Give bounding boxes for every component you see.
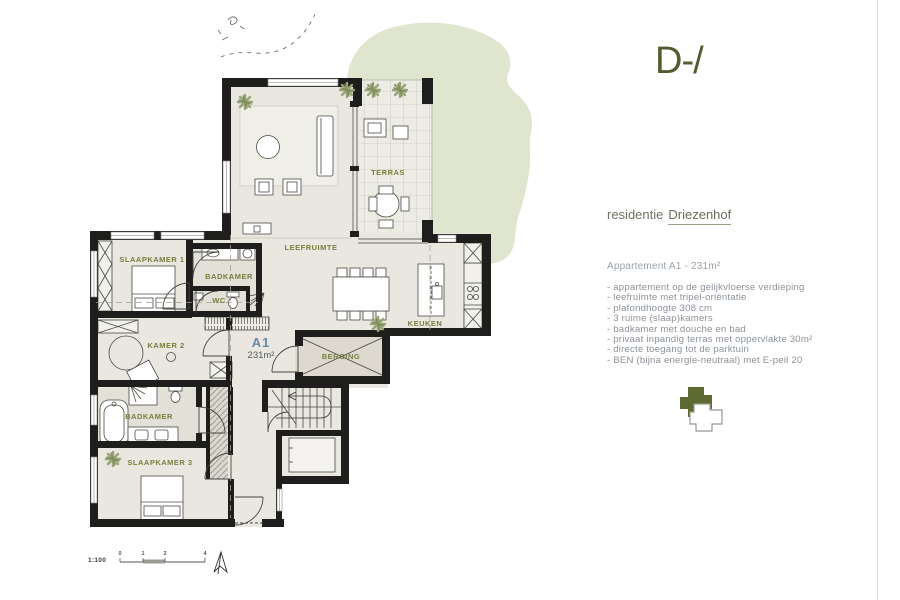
unit-area: 231m² (248, 350, 275, 361)
brand-logo: D-/ (655, 40, 703, 83)
scale-tick-2: 2 (163, 551, 166, 557)
room-label-leefruimte: LEEFRUIMTE (285, 243, 338, 252)
room-label-wc: WC (212, 296, 226, 305)
room-label-berging: BERGING (322, 352, 361, 361)
footprint-logo-icon (680, 387, 722, 431)
scale-tick-3: 4 (203, 551, 206, 557)
scale-tick-0: 0 (118, 551, 121, 557)
site-sketch (218, 14, 315, 57)
room-label-badkamer-bottom: BADKAMER (125, 412, 173, 421)
scale-tick-1: 1 (141, 551, 144, 557)
room-label-keuken: KEUKEN (408, 319, 443, 328)
residence-name: residentieDriezenhof (607, 207, 731, 222)
residence-prefix: residentie (607, 207, 663, 222)
room-label-badkamer-top: BADKAMER (205, 272, 253, 281)
brochure-page: SLAAPKAMER 1 BADKAMER WC LEEFRUIMTE TERR… (0, 0, 900, 600)
north-arrow (214, 552, 227, 574)
feature-item: - BEN (bijna energie-neutraal) met E-pei… (607, 356, 812, 366)
scale-label: 1:100 (88, 557, 106, 564)
room-label-kamer2: KAMER 2 (147, 341, 184, 350)
unit-code: A1 (252, 335, 271, 350)
feature-list: - appartement op de gelijkvloerse verdie… (607, 283, 812, 366)
room-label-slaapkamer1: SLAAPKAMER 1 (119, 255, 184, 264)
apartment-title: Appartement A1 - 231m² (607, 261, 720, 272)
scale-bar (120, 558, 205, 564)
page-edge-divider (877, 0, 878, 600)
residence-title: Driezenhof (668, 207, 731, 225)
room-label-terras: TERRAS (371, 168, 405, 177)
room-label-slaapkamer3: SLAAPKAMER 3 (127, 458, 192, 467)
